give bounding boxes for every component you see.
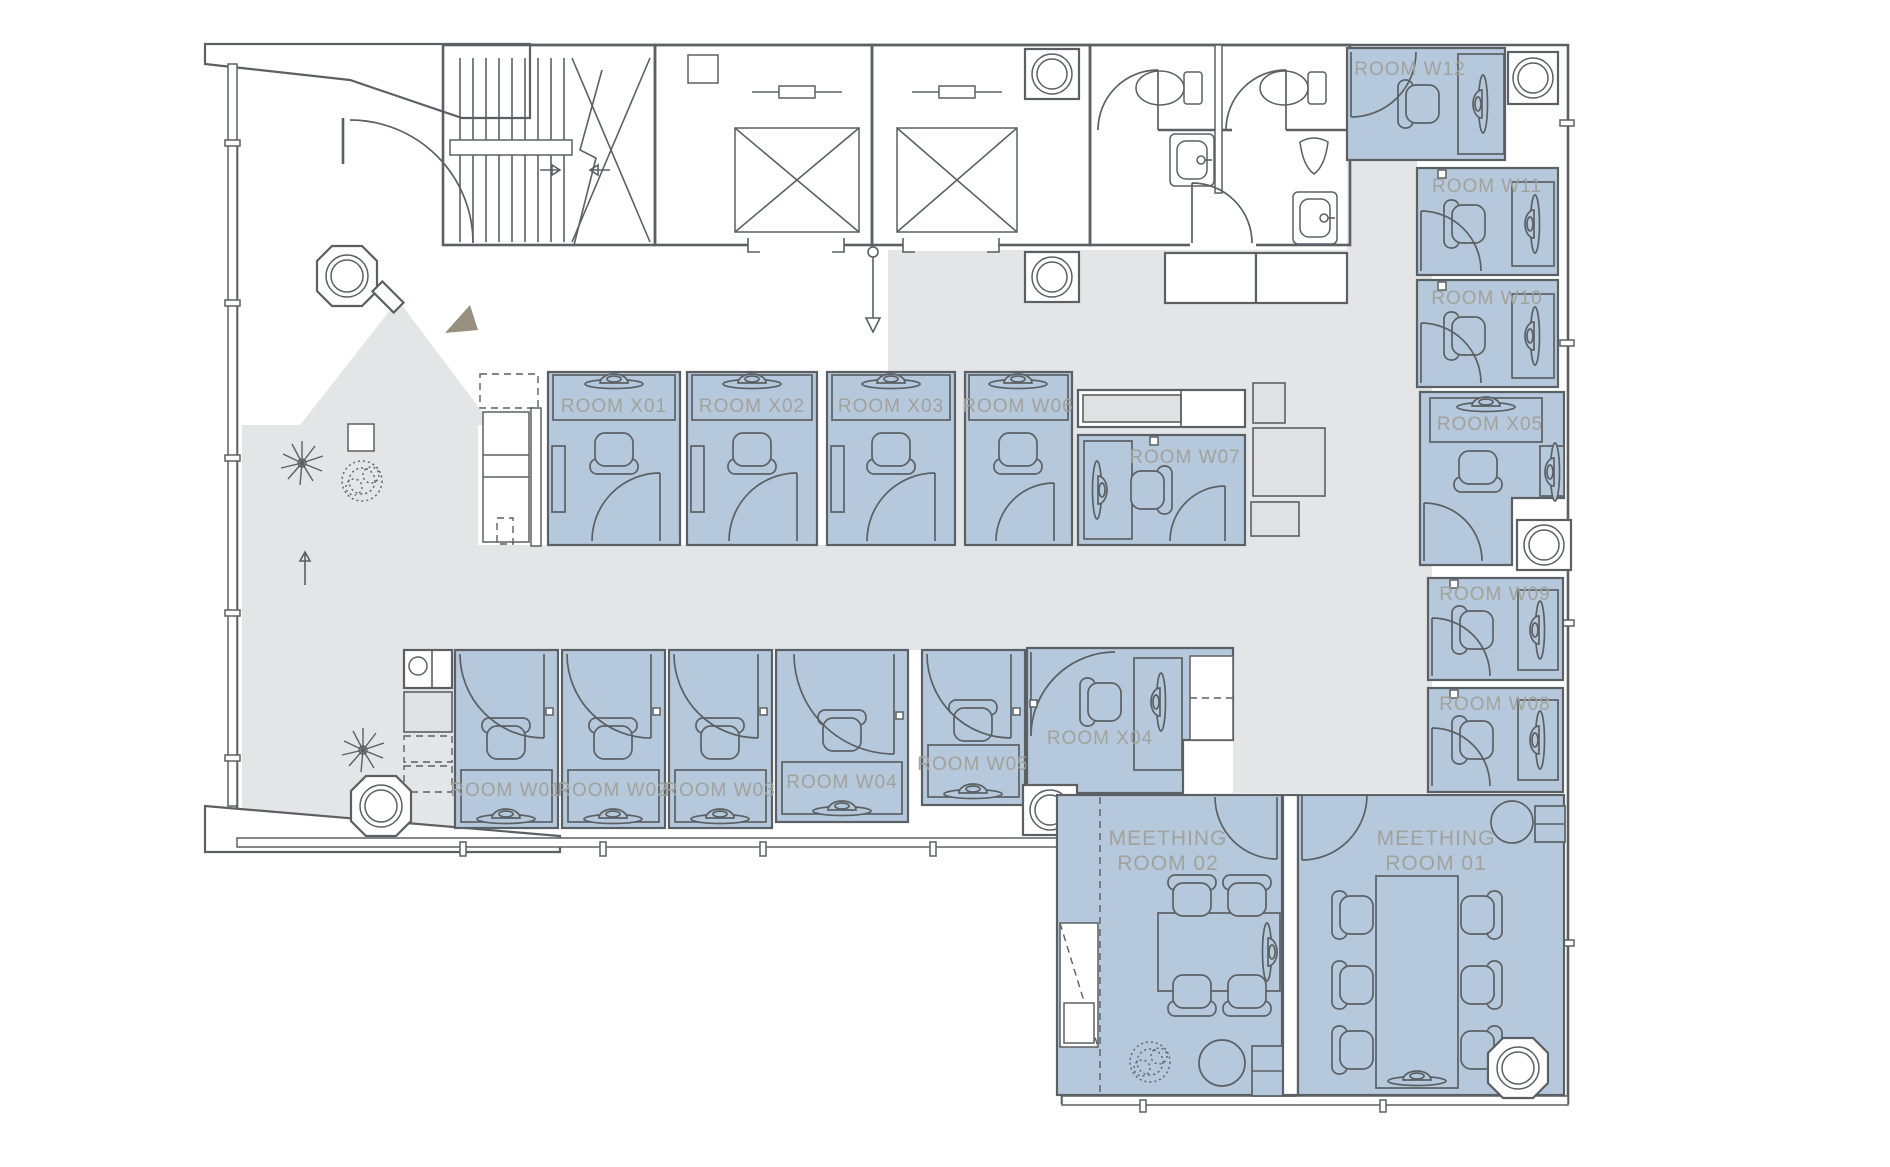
column-icon xyxy=(1025,252,1079,302)
restrooms xyxy=(1090,45,1350,250)
down-arrow-icon xyxy=(866,318,880,332)
room-x03: ROOM X03 xyxy=(827,372,955,545)
south-window-band xyxy=(237,838,1062,847)
room-w07: ROOM W07 xyxy=(1078,435,1245,545)
storage-niche xyxy=(480,374,541,546)
room-label: ROOM W04 xyxy=(786,772,897,793)
room-label: ROOM X02 xyxy=(699,396,805,417)
lobby-bench xyxy=(1165,253,1347,303)
room-x04: ROOM X04 xyxy=(1027,648,1233,793)
room-x01: ROOM X01 xyxy=(548,372,680,545)
column-icon xyxy=(1488,1038,1548,1098)
room-label: ROOM W01 xyxy=(450,780,561,801)
room-w10: ROOM W10 xyxy=(1417,280,1558,387)
room-w04: ROOM W04 xyxy=(776,650,908,822)
room-w11: ROOM W11 xyxy=(1417,168,1558,275)
meeting-room-02: MEETHING ROOM 02 xyxy=(1057,795,1296,1096)
urinal-icon xyxy=(1300,138,1328,174)
sink-icon xyxy=(1293,192,1337,244)
column-icon xyxy=(1517,520,1571,570)
room-label: ROOM W09 xyxy=(1439,584,1550,605)
room-label: ROOM X04 xyxy=(1047,728,1153,749)
stair-handrail xyxy=(450,140,572,155)
room-label: ROOM W03 xyxy=(664,780,775,801)
room-label: ROOM W08 xyxy=(1439,694,1550,715)
room-w12: ROOM W12 xyxy=(1347,48,1558,160)
floor-plan-canvas: ROOM X01 ROOM X02 ROOM X03 ROOM W06 xyxy=(0,0,1890,1167)
meeting-window-band xyxy=(1062,1096,1568,1105)
column-icon xyxy=(317,246,377,306)
meeting-table xyxy=(1376,876,1458,1088)
room-w09: ROOM W09 xyxy=(1428,578,1563,680)
room-label: ROOM X01 xyxy=(561,396,667,417)
room-label: ROOM X03 xyxy=(838,396,944,417)
side-table xyxy=(348,424,374,451)
room-label: ROOM W12 xyxy=(1354,59,1465,80)
meeting-room-01: MEETHING ROOM 01 xyxy=(1298,795,1565,1098)
w07-counter xyxy=(1078,390,1245,427)
floor-plan-svg: ROOM X01 ROOM X02 ROOM X03 ROOM W06 xyxy=(0,0,1890,1167)
room-label: ROOM W06 xyxy=(962,396,1073,417)
elevator-car-1 xyxy=(735,86,859,232)
room-w03: ROOM W03 xyxy=(664,650,775,828)
room-x02: ROOM X02 xyxy=(687,372,817,545)
room-w08: ROOM W08 xyxy=(1428,688,1563,792)
partition-wall xyxy=(1283,795,1298,1095)
room-label: ROOM W05 xyxy=(917,754,1028,775)
toilet-icon xyxy=(1260,71,1326,105)
room-label: ROOM W10 xyxy=(1431,288,1542,309)
room-w06: ROOM W06 xyxy=(962,372,1073,545)
left-window-band xyxy=(228,64,237,806)
room-label-line2: ROOM 02 xyxy=(1117,852,1219,875)
room-label: ROOM W02 xyxy=(557,780,668,801)
room-label-line1: MEETHING xyxy=(1109,827,1228,850)
room-w05: ROOM W05 xyxy=(917,650,1028,805)
room-label-line1: MEETHING xyxy=(1377,827,1496,850)
toilet-icon xyxy=(1136,71,1202,105)
entry-door-arc xyxy=(350,120,473,243)
room-label: ROOM W07 xyxy=(1129,447,1240,468)
room-label: ROOM W11 xyxy=(1432,176,1542,197)
room-label: ROOM X05 xyxy=(1437,414,1543,435)
room-label-line2: ROOM 01 xyxy=(1385,852,1487,875)
entry-arrow-icon xyxy=(445,305,478,333)
room-w02: ROOM W02 xyxy=(557,650,668,828)
column-icon xyxy=(351,776,411,836)
room-w01: ROOM W01 xyxy=(450,650,561,828)
column-icon xyxy=(1025,49,1079,99)
balcony-parapet xyxy=(205,44,530,118)
sink-icon xyxy=(1170,134,1214,186)
elevator-car-2 xyxy=(897,86,1017,232)
